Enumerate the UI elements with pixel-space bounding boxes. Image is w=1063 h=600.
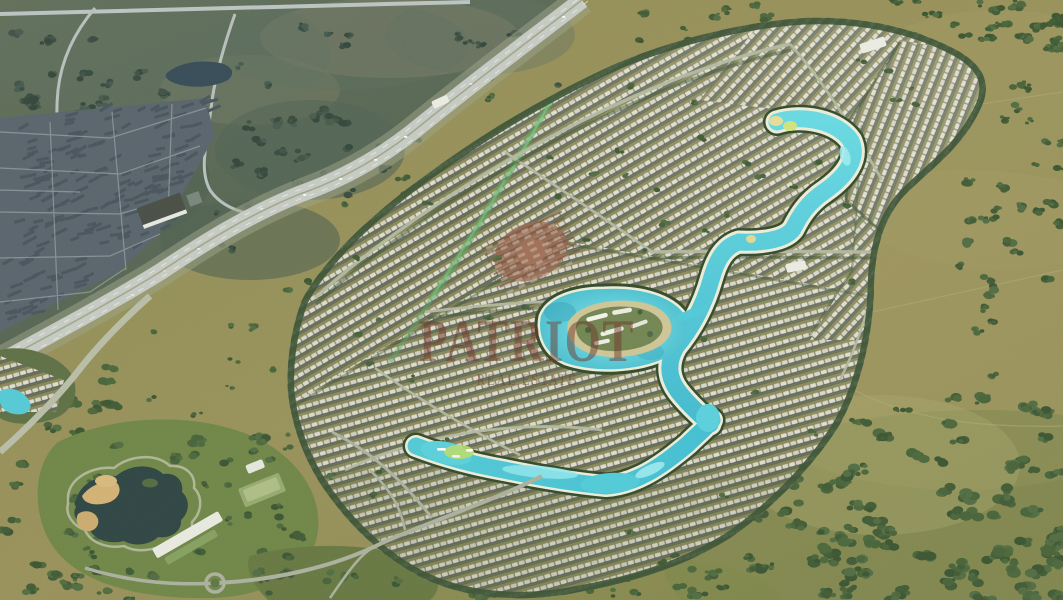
svg-text:REAL ESTATE: REAL ESTATE — [477, 372, 578, 389]
svg-text:PATRIOT: PATRIOT — [419, 308, 635, 374]
